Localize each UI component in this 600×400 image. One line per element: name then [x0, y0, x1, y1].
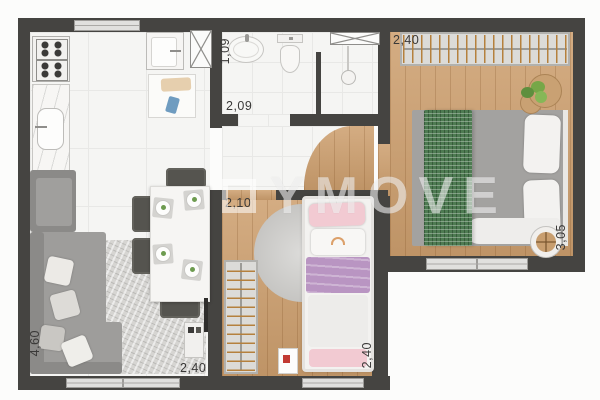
bedroom2-wardrobe-hangers	[224, 260, 258, 374]
bedroom1-wardrobe-hangers	[400, 32, 570, 66]
faucet-icon	[245, 34, 249, 42]
stool-top	[536, 232, 556, 252]
hanger-hatch	[403, 35, 567, 63]
console-detail	[196, 327, 201, 333]
tank-basin	[151, 37, 177, 67]
white-duvet	[308, 295, 368, 347]
dim-bedroom1-depth: 3,05	[554, 224, 568, 250]
duct-shaft-icon	[330, 32, 380, 45]
bedroom1-window	[426, 258, 528, 270]
plant-leaves	[535, 91, 547, 103]
dim-bedroom2-depth: 2,40	[360, 342, 374, 368]
burner-group	[36, 39, 68, 60]
kitchen-window	[74, 20, 140, 31]
faucet-icon	[170, 50, 181, 52]
lilac-blanket	[306, 257, 370, 293]
laundry-item	[165, 96, 180, 114]
rainbow-print-icon	[331, 237, 345, 245]
toy-mark	[283, 355, 290, 363]
dim-bathroom-width: 1,09	[218, 38, 232, 64]
laundry-tank-icon	[146, 32, 184, 70]
sofa-cushion	[44, 256, 75, 287]
hanger-hatch	[227, 263, 255, 371]
plate-icon	[184, 262, 200, 278]
sofa-chaise	[30, 170, 76, 232]
wall-bathroom-bottom-b	[290, 114, 378, 126]
console-detail	[188, 327, 194, 333]
bed-pillow	[523, 114, 561, 173]
kitchen-sink-icon	[37, 108, 64, 150]
shower-cord	[347, 46, 349, 72]
stove-icon	[32, 36, 70, 82]
dim-living-width: 2,40	[180, 361, 206, 375]
towel	[161, 77, 192, 92]
flush-button	[289, 37, 293, 40]
burner-group	[36, 60, 68, 81]
dim-bathroom-depth: 2,09	[226, 99, 252, 113]
faucet-icon	[35, 126, 47, 128]
plant-icon	[528, 74, 562, 108]
wall-bedroom1-right	[573, 18, 585, 272]
dim-living-depth: 4,60	[28, 330, 42, 356]
dining-chair	[166, 168, 206, 188]
wall-bathroom-bottom-a	[210, 114, 238, 126]
pink-foot-blanket	[309, 349, 367, 367]
plant-leaves	[521, 87, 534, 98]
plate-icon	[155, 200, 171, 216]
duct-shaft-icon	[190, 30, 212, 68]
bathroom-door-opening	[238, 114, 290, 126]
shower-head-icon	[341, 70, 356, 85]
wall-living-bedroom2	[208, 190, 222, 378]
toilet-bowl	[280, 45, 300, 73]
toilet-icon	[277, 34, 303, 43]
tv-panel-icon	[204, 298, 208, 332]
living-sliding-window	[66, 378, 180, 388]
rainbow-pillow	[311, 229, 365, 255]
chaise-seat	[36, 178, 72, 226]
watermark-text: YMOVE	[270, 170, 508, 222]
toy-box-icon	[278, 348, 298, 374]
shower-partition	[316, 52, 321, 116]
floor-plan: 2,40 1,09 2,09 2,10 3,05 2,40 4,60 2,40 …	[0, 0, 600, 400]
watermark: YMOVE	[222, 170, 508, 222]
basin-inner	[233, 41, 259, 58]
laundry-counter	[148, 74, 196, 118]
bedroom2-window	[302, 378, 364, 388]
plate-icon	[186, 192, 202, 208]
dim-bedroom1-width: 2,40	[393, 33, 419, 47]
tv-console	[184, 322, 204, 358]
plate-icon	[155, 246, 171, 262]
watermark-logo-icon	[222, 179, 256, 213]
washbasin-icon	[228, 36, 264, 63]
